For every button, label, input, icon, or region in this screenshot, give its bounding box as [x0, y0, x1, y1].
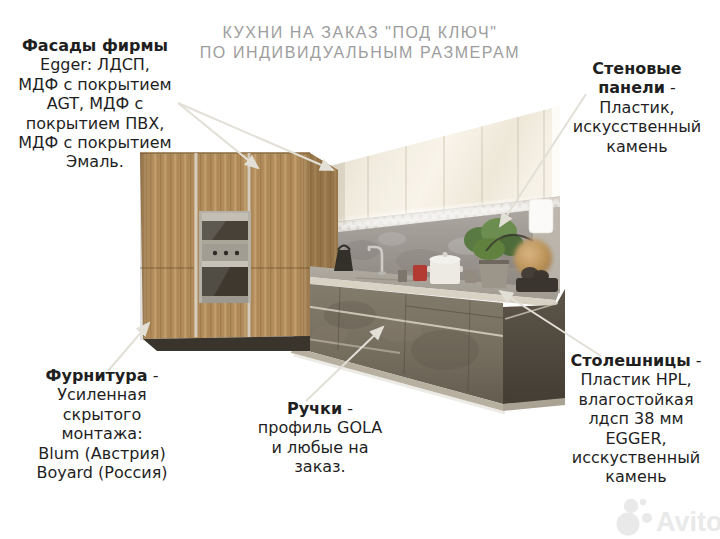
- callout-hardware-body: Усиленная скрытого монтажа: Blum (Австри…: [18, 385, 186, 482]
- advert-page: Avito КУХНИ НА ЗАКАЗ "ПОД КЛЮЧ" ПО ИНДИВ…: [0, 0, 720, 539]
- red-jar: [413, 265, 427, 281]
- oven-handle: [202, 261, 248, 267]
- callout-hardware-title: Фурнитура: [46, 366, 148, 385]
- callout-handles-title: Ручки: [287, 399, 342, 418]
- cup: [465, 270, 477, 283]
- callout-facades-body: Egger: ЛДСП, МДФ с покрытием AGT, МДФ с …: [14, 55, 176, 171]
- avito-wordmark: Avito: [656, 507, 720, 537]
- callout-countertops-body: Пластик HPL, влагостойкая лдсп 38 мм EGG…: [554, 370, 718, 486]
- corner-wood-panel: [310, 153, 338, 270]
- avito-logo-circle: [624, 499, 638, 513]
- avito-logo-circle: [642, 513, 652, 523]
- tall-wood-cabinets: [140, 153, 310, 351]
- avito-watermark: Avito: [617, 499, 720, 537]
- avito-logo-circle: [617, 513, 640, 536]
- paper-towel-box: [529, 199, 553, 233]
- callout-handles: Ручки - профиль GOLA и любые на заказ.: [240, 399, 400, 477]
- callout-hardware: Фурнитура - Усиленная скрытого монтажа: …: [18, 366, 186, 482]
- built-in-oven: [199, 211, 251, 303]
- callout-facades-title: Фасады фирмы: [22, 36, 168, 55]
- callout-facades: Фасады фирмы Egger: ЛДСП, МДФ с покрытие…: [14, 36, 176, 172]
- callout-countertops: Столешницы - Пластик HPL, влагостойкая л…: [554, 351, 718, 487]
- avito-logo-dot: [640, 499, 646, 505]
- base-cabinets: [293, 283, 503, 404]
- callout-handles-body: профиль GOLA и любые на заказ.: [240, 418, 400, 476]
- callout-wall-panels-body: Пластик, искусственный камень: [556, 98, 718, 156]
- callout-countertops-title: Столешницы: [570, 351, 690, 370]
- callout-wall-panels: Стеновые панели - Пластик, искусственный…: [556, 59, 718, 156]
- small-canister: [398, 270, 407, 282]
- leader-hardware: [108, 323, 149, 371]
